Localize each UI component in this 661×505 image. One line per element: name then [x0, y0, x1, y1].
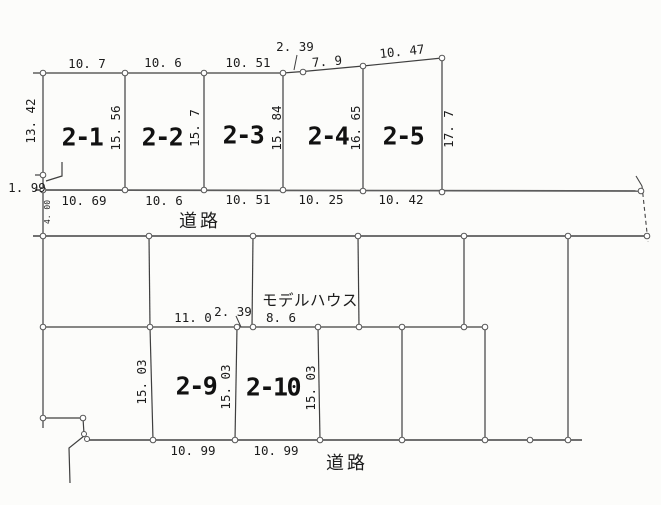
boundary-nodes	[40, 55, 650, 443]
dim-side-plot9-depth-right: 15. 03	[220, 364, 233, 409]
plot-label-2-3: 2-3	[223, 123, 264, 148]
dim-road-width: 4. 00	[44, 200, 52, 224]
dim-bottom-plot9-width: 10. 99	[170, 445, 215, 458]
road-label-top: 道路	[179, 213, 221, 231]
right-dashed-boundary	[636, 176, 648, 242]
plot-label-2-1: 2-1	[62, 125, 103, 150]
dim-bottom-plot2-width: 10. 6	[145, 195, 183, 208]
dim-bottom-plot10-width: 10. 99	[253, 445, 298, 458]
dim-bottom-plot1-width: 10. 69	[61, 195, 106, 208]
plot-label-2-10: 2-10	[246, 375, 300, 400]
road-lines	[33, 190, 647, 440]
lot-layout-diagram: 10. 7 10. 6 10. 51 2. 39 7. 9 10. 47 13.…	[0, 0, 661, 505]
plot-label-2-9: 2-9	[176, 374, 217, 399]
dim-side-plot10-depth-right: 15. 03	[305, 365, 318, 410]
dim-top-plot2-width: 10. 6	[144, 57, 182, 70]
dim-top-plot1-width: 10. 7	[68, 58, 106, 71]
dim-bottom-plot4-width: 10. 25	[298, 194, 343, 207]
dim-top-plot3-width: 10. 51	[225, 57, 270, 70]
dim-side-plot2-depth: 15. 7	[189, 109, 202, 147]
dim-side-plot1-depth: 15. 56	[110, 105, 123, 150]
dim-side-plot3-depth: 15. 84	[271, 105, 284, 150]
dim-side-plot5-depth: 17. 7	[443, 110, 456, 148]
dim-side-plot9-depth-left: 15. 03	[136, 359, 149, 404]
plot-label-2-5: 2-5	[383, 124, 424, 149]
dim-middle-width-a: 11. 0	[174, 312, 212, 325]
dim-middle-width-c: 8. 6	[266, 312, 296, 325]
dim-top-plot4-width-a: 2. 39	[276, 41, 314, 54]
dim-side-left-depth: 13. 42	[25, 98, 38, 143]
dim-bottom-plot3-width: 10. 51	[225, 194, 270, 207]
dim-side-plot4-depth: 16. 65	[350, 105, 363, 150]
model-house-label: モデルハウス	[262, 293, 358, 309]
dim-left-offset: 1. 99	[8, 182, 46, 195]
plot-label-2-4: 2-4	[308, 124, 349, 149]
dim-middle-width-b: 2. 39	[214, 306, 252, 319]
road-label-bottom: 道路	[326, 455, 368, 473]
lot-diagram-linework	[0, 0, 661, 505]
plot-label-2-2: 2-2	[142, 125, 183, 150]
dim-top-plot4-width-b: 7. 9	[311, 54, 342, 69]
dim-bottom-plot5-width: 10. 42	[378, 194, 423, 207]
